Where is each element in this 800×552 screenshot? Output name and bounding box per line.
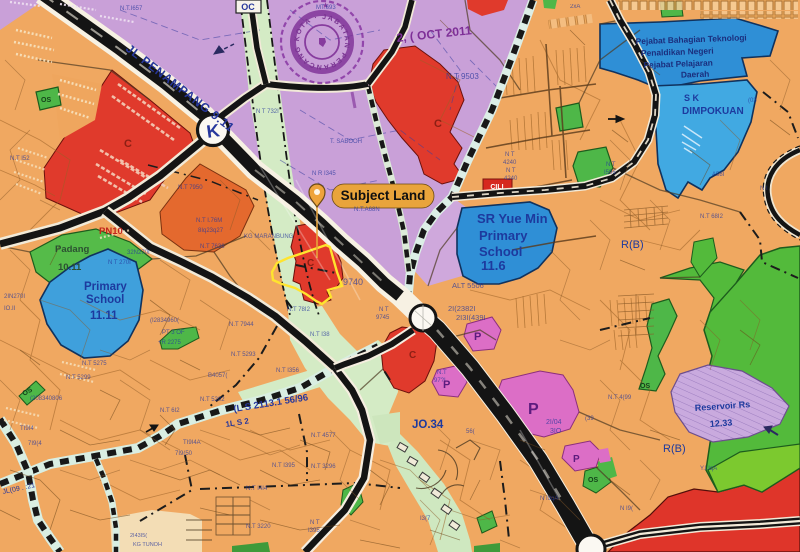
svg-text:N.T 3220: N.T 3220	[246, 524, 271, 530]
svg-text:N.T I4I4: N.T I4I4	[246, 486, 268, 492]
svg-text:Primary: Primary	[84, 281, 127, 293]
svg-text:OC: OC	[241, 2, 255, 12]
svg-text:4240: 4240	[504, 176, 518, 182]
svg-text:2I3I(439I: 2I3I(439I	[456, 313, 486, 322]
svg-text:Y.I.IqA: Y.I.IqA	[700, 466, 717, 472]
svg-text:56(: 56(	[466, 429, 475, 435]
svg-text:A58I: A58I	[712, 172, 725, 178]
svg-text:R(B): R(B)	[663, 443, 686, 455]
svg-text:N T: N T	[379, 307, 389, 313]
svg-text:(208340806: (208340806	[30, 396, 63, 402]
svg-text:(39: (39	[585, 416, 594, 422]
svg-text:9745: 9745	[376, 315, 390, 321]
svg-text:2IN270I: 2IN270I	[4, 294, 25, 300]
svg-text:4240: 4240	[503, 160, 517, 166]
svg-text:MT.693: MT.693	[316, 5, 336, 11]
svg-text:Daerah: Daerah	[681, 69, 710, 80]
svg-text:N T: N T	[310, 520, 320, 526]
svg-text:10.11: 10.11	[58, 262, 82, 273]
svg-text:T. SABOOH: T. SABOOH	[330, 139, 362, 145]
svg-text:N.T 6I2: N.T 6I2	[160, 408, 180, 414]
svg-text:N R I345: N R I345	[312, 171, 336, 177]
svg-text:N I9(: N I9(	[620, 506, 633, 512]
svg-text:N.T 5275: N.T 5275	[82, 361, 107, 367]
svg-text:N T 732I: N T 732I	[256, 109, 279, 115]
svg-text:P: P	[474, 331, 481, 343]
svg-text:N.T 5299: N.T 5299	[66, 375, 91, 381]
svg-text:N.T 4(99: N.T 4(99	[608, 395, 632, 401]
svg-text:C: C	[124, 138, 132, 150]
svg-text:2I43I5(: 2I43I5(	[130, 533, 147, 539]
svg-text:N.T 5293: N.T 5293	[231, 352, 256, 358]
svg-text:P: P	[573, 454, 580, 465]
svg-text:OS: OS	[41, 97, 51, 104]
svg-text:2I/04: 2I/04	[546, 419, 562, 426]
svg-text:32N270I: 32N270I	[127, 250, 150, 256]
svg-text:Subject Land: Subject Land	[341, 188, 426, 203]
svg-text:I395: I395	[308, 528, 320, 534]
svg-text:C: C	[307, 258, 314, 269]
svg-text:7I9(4: 7I9(4	[28, 441, 42, 447]
svg-text:OS: OS	[640, 383, 650, 390]
svg-text:B4057(: B4057(	[208, 373, 227, 379]
svg-text:7I9(50: 7I9(50	[175, 451, 193, 457]
svg-text:N T: N T	[606, 162, 616, 168]
svg-text:11.11: 11.11	[90, 310, 118, 322]
svg-text:Primary: Primary	[479, 228, 528, 243]
svg-text:3IO: 3IO	[550, 428, 562, 435]
svg-text:N.T.A68N: N.T.A68N	[354, 207, 380, 213]
svg-text:N.T 7944: N.T 7944	[229, 322, 254, 328]
svg-text:N I9qA: N I9qA	[540, 496, 558, 502]
svg-text:N I: N I	[760, 186, 768, 192]
svg-text:(I2834960(: (I2834960(	[150, 318, 179, 324]
svg-text:S K: S K	[684, 93, 700, 103]
svg-text:N.T 5202: N.T 5202	[200, 397, 225, 403]
svg-text:KG MARANBUNG: KG MARANBUNG	[244, 234, 294, 240]
svg-text:(03: (03	[748, 98, 757, 104]
svg-text:8Iq23q27: 8Iq23q27	[198, 228, 224, 234]
svg-text:ALT 5506: ALT 5506	[452, 281, 484, 290]
svg-text:TI9I4: TI9I4	[20, 426, 34, 432]
svg-text:Padang: Padang	[55, 244, 90, 255]
svg-text:N.T.I657: N.T.I657	[120, 6, 143, 12]
svg-text:I596: I596	[604, 170, 616, 176]
svg-text:IO.II: IO.II	[4, 306, 16, 312]
svg-text:PT 3 OF: PT 3 OF	[162, 330, 185, 336]
svg-text:C: C	[409, 350, 416, 361]
svg-text:N.T 7636: N.T 7636	[200, 244, 225, 250]
svg-text:DIMPOKUAN: DIMPOKUAN	[682, 106, 744, 117]
svg-text:KG TUNOH: KG TUNOH	[133, 542, 162, 548]
svg-text:12.33: 12.33	[709, 417, 732, 429]
svg-text:N T 270I: N T 270I	[108, 260, 131, 266]
svg-text:2I(2382I: 2I(2382I	[448, 304, 476, 313]
svg-text:C: C	[434, 118, 442, 130]
svg-text:N T: N T	[505, 152, 515, 158]
svg-text:N.T I38: N.T I38	[310, 332, 330, 338]
svg-text:TI9I4A: TI9I4A	[183, 440, 201, 446]
svg-text:N.T 68I2: N.T 68I2	[700, 214, 724, 220]
svg-text:P: P	[443, 379, 450, 391]
svg-text:11.6: 11.6	[481, 258, 506, 273]
svg-text:N.T 3296: N.T 3296	[311, 464, 336, 470]
svg-text:N.T I395: N.T I395	[272, 463, 296, 469]
svg-text:2xA: 2xA	[570, 4, 580, 10]
svg-text:PN10: PN10	[99, 226, 123, 237]
svg-text:R(B): R(B)	[621, 239, 644, 251]
svg-text:N T: N T	[506, 168, 516, 174]
svg-text:+R 2275: +R 2275	[158, 340, 182, 346]
svg-text:N.T 4577: N.T 4577	[311, 433, 336, 439]
svg-text:I3(7: I3(7	[420, 516, 431, 522]
svg-text:N.T I356: N.T I356	[276, 368, 300, 374]
svg-text:N.T I.76M: N.T I.76M	[196, 218, 222, 224]
svg-text:SR Yue Min: SR Yue Min	[477, 211, 548, 226]
svg-text:School: School	[479, 244, 522, 259]
svg-text:N.T 78I2: N.T 78I2	[287, 307, 311, 313]
svg-text:N.T 9503: N.T 9503	[446, 72, 479, 81]
svg-text:P: P	[528, 401, 539, 418]
svg-text:N.T 7950: N.T 7950	[178, 185, 203, 191]
svg-text:CILI: CILI	[490, 184, 503, 191]
svg-text:JO.34: JO.34	[412, 419, 444, 431]
svg-text:N.T: N.T	[437, 370, 447, 376]
svg-text:School: School	[86, 294, 124, 306]
svg-text:N.T I52: N.T I52	[10, 156, 30, 162]
svg-text:OS: OS	[588, 477, 598, 484]
